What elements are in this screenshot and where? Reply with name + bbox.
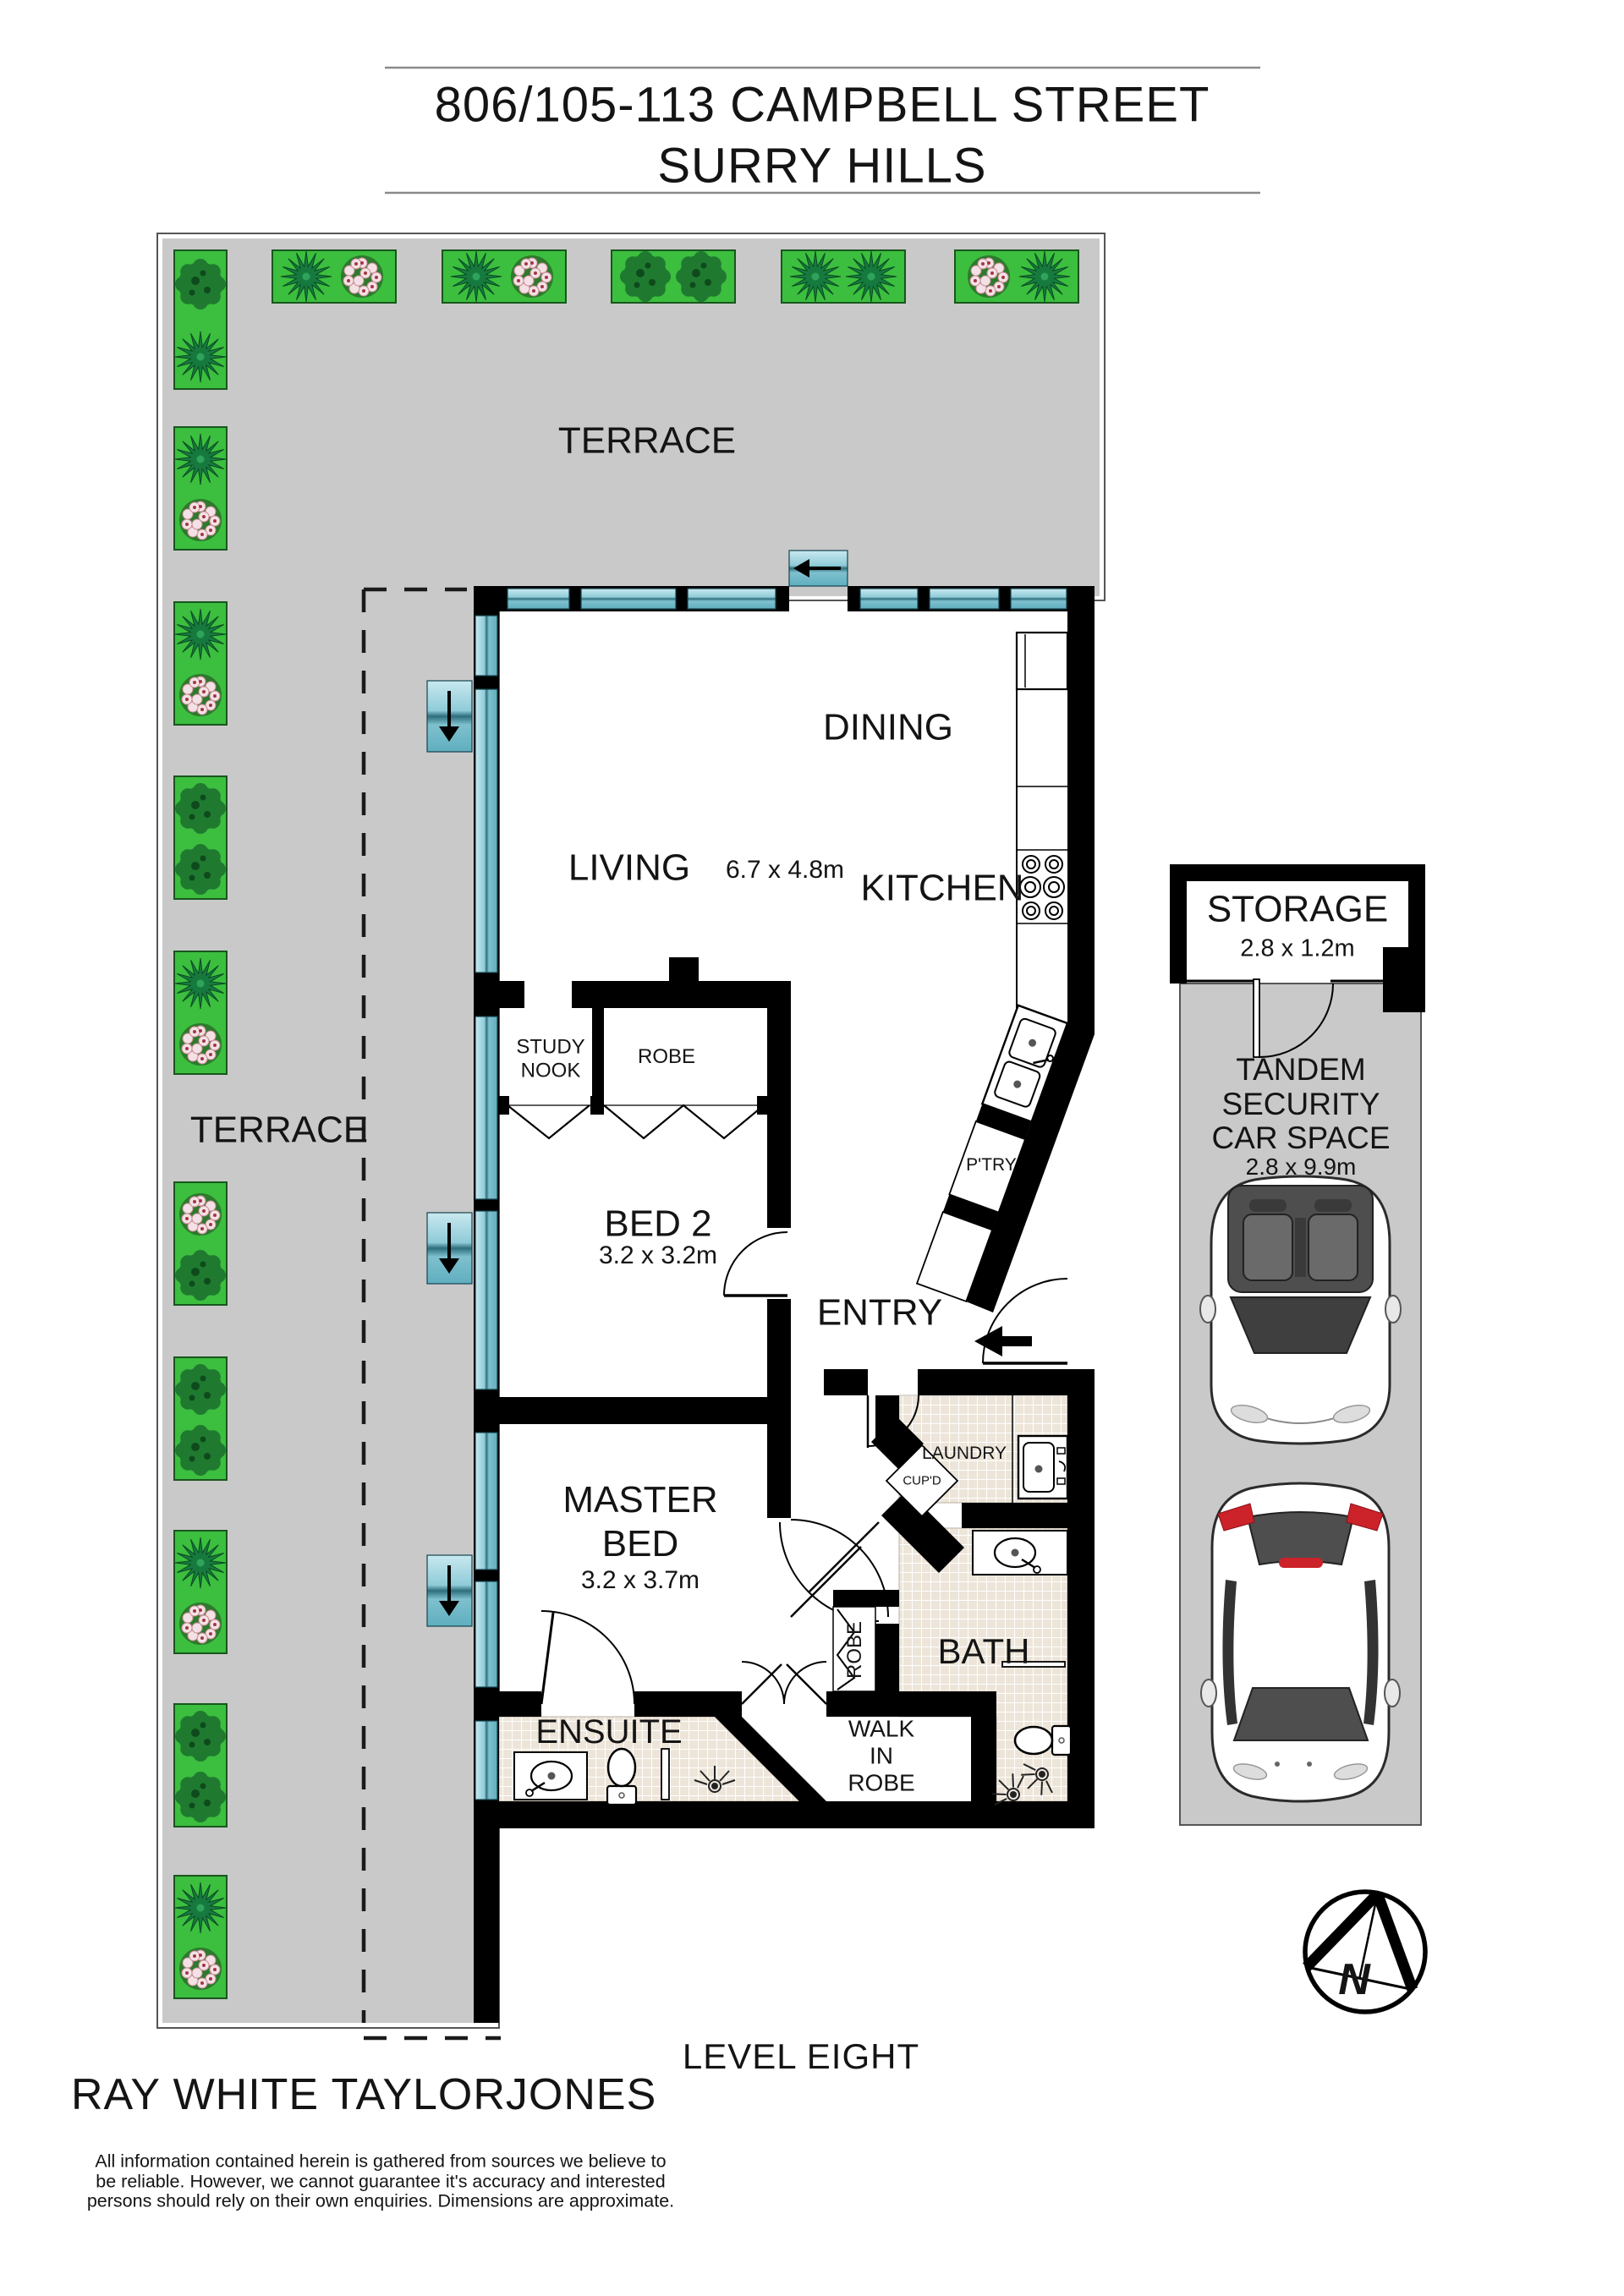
label-walk-in-robe: WALK IN ROBE bbox=[842, 1716, 922, 1798]
car-hatchback bbox=[1201, 1483, 1400, 1801]
label-master-bed: MASTER BED bbox=[551, 1478, 729, 1566]
planter-boxes-top bbox=[272, 250, 1078, 303]
label-terrace-top: TERRACE bbox=[558, 420, 736, 463]
label-pantry: P'TRY bbox=[966, 1155, 1017, 1175]
label-dining: DINING bbox=[823, 707, 953, 750]
label-entry: ENTRY bbox=[817, 1292, 942, 1335]
ensuite-toilet bbox=[607, 1749, 636, 1805]
label-kitchen: KITCHEN bbox=[860, 868, 1023, 911]
label-terrace-left: TERRACE bbox=[190, 1110, 368, 1153]
label-level: LEVEL EIGHT bbox=[683, 2036, 919, 2077]
label-storage: STORAGE bbox=[1207, 889, 1388, 932]
bed2-door bbox=[724, 1232, 787, 1296]
label-storage-dims: 2.8 x 1.2m bbox=[1240, 934, 1354, 962]
ensuite-door bbox=[541, 1611, 634, 1704]
label-cupboard: CUP'D bbox=[903, 1473, 941, 1488]
disclaimer-text: All information contained herein is gath… bbox=[85, 2152, 677, 2212]
label-living-dims: 6.7 x 4.8m bbox=[726, 856, 844, 885]
label-laundry: LAUNDRY bbox=[922, 1444, 1007, 1464]
label-car-space: TANDEM SECURITY CAR SPACE bbox=[1195, 1053, 1407, 1156]
label-robe-hall: ROBE bbox=[843, 1621, 867, 1679]
bath-toilet bbox=[1015, 1726, 1071, 1755]
floorplan-page: 806/105-113 CAMPBELL STREET SURRY HILLS … bbox=[0, 0, 1624, 2296]
label-car-space-dims: 2.8 x 9.9m bbox=[1246, 1153, 1357, 1181]
label-study-nook: STUDY NOOK bbox=[508, 1035, 593, 1082]
car-convertible bbox=[1200, 1176, 1401, 1444]
bed2-robe-bifold bbox=[506, 1105, 765, 1138]
label-bed2: BED 2 bbox=[604, 1203, 711, 1247]
walk-in-robe-doors bbox=[742, 1662, 826, 1704]
label-living: LIVING bbox=[568, 847, 690, 890]
agency-name: RAY WHITE TAYLORJONES bbox=[71, 2070, 656, 2121]
label-ensuite: ENSUITE bbox=[535, 1712, 682, 1751]
compass-north-label: N bbox=[1338, 1955, 1370, 2006]
label-bed2-dims: 3.2 x 3.2m bbox=[599, 1241, 717, 1271]
cooktop bbox=[1020, 856, 1064, 919]
label-master-dims: 3.2 x 3.7m bbox=[581, 1566, 700, 1596]
fridge bbox=[1017, 633, 1067, 689]
label-bath: BATH bbox=[938, 1631, 1030, 1672]
shower-screen bbox=[661, 1749, 669, 1800]
title-address: 806/105-113 CAMPBELL STREET bbox=[435, 78, 1210, 134]
sliding-door-arrow bbox=[789, 551, 848, 586]
title-suburb: SURRY HILLS bbox=[657, 139, 986, 195]
apartment-walls bbox=[474, 586, 1095, 2023]
label-robe-bed2: ROBE bbox=[638, 1045, 695, 1069]
